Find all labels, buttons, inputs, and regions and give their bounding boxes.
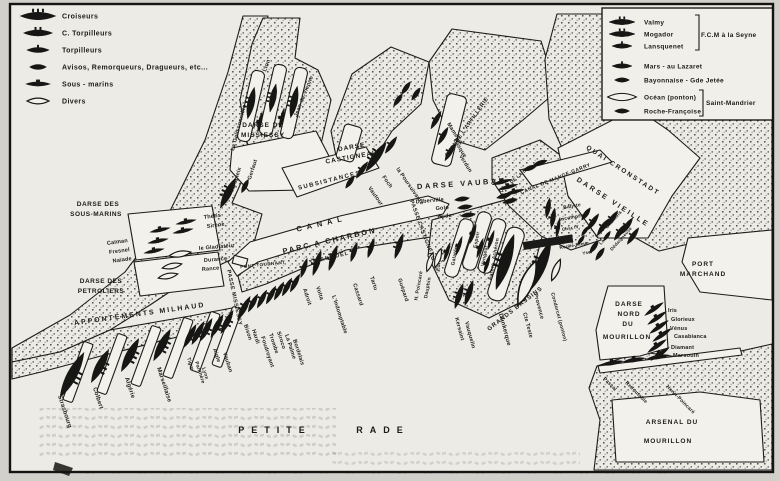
area-label: MARCHAND (680, 271, 726, 278)
legend-label: C. Torpilleurs (62, 31, 112, 38)
area-label: SOUS-MARINS (70, 211, 122, 218)
ship-label: Diamant (671, 345, 694, 351)
legend-label: Divers (62, 99, 86, 106)
ship-label: Golo (435, 205, 449, 212)
legend-note: F.C.M à la Seyne (701, 32, 756, 39)
legend-label: Avisos, Remorqueurs, Dragueurs, etc... (62, 65, 208, 72)
toulon-port-map: La GalissonnièreLionJean-de-VienneDuplei… (0, 0, 780, 481)
scanned-harbor-map: La GalissonnièreLionJean-de-VienneDuplei… (0, 0, 780, 481)
area-label: DARSE DES (77, 201, 120, 208)
area-label: MOURILLON (644, 438, 692, 445)
area-label: ARSENAL DU (646, 419, 699, 426)
area-label: RADE (356, 425, 410, 435)
legend-label: Torpilleurs (62, 48, 102, 55)
legend-label: Croiseurs (62, 14, 98, 21)
area-label: DARSE (615, 301, 643, 308)
ship-label: Marsouin (673, 353, 699, 359)
area-label: MOURILLON (603, 334, 651, 341)
ship-label: Iris (668, 308, 677, 314)
ship (27, 98, 49, 104)
area-label: MISSIESSY (241, 132, 285, 139)
ship-label: Glorieux (671, 317, 696, 323)
legend-label: Roche-Françoise (644, 109, 701, 116)
area-label: PETROLIERS (78, 288, 125, 295)
legend-label: Mogador (644, 32, 674, 39)
ship-label: Vénus (670, 326, 688, 332)
area-label: NORD (617, 311, 640, 318)
legend-label: Mars - au Lazaret (644, 64, 703, 71)
ship-label: Casabianca (674, 334, 707, 340)
ship-label: Aude (437, 213, 452, 220)
area-label: PORT (692, 261, 714, 268)
legend-label: Valmy (644, 20, 664, 27)
area-label: PETITE (238, 425, 312, 435)
area-label: DARSE DES (80, 278, 123, 285)
area-label: DU (622, 321, 633, 328)
legend-label: Océan (ponton) (644, 95, 696, 102)
legend-label: Sous - marins (62, 82, 114, 89)
legend-note: Saint-Mandrier (706, 100, 756, 107)
legend-label: Lansquenet (644, 44, 684, 51)
area-label: DARSE DE (242, 122, 284, 129)
legend-label: Bayonnaise - Gde Jetée (644, 78, 724, 85)
